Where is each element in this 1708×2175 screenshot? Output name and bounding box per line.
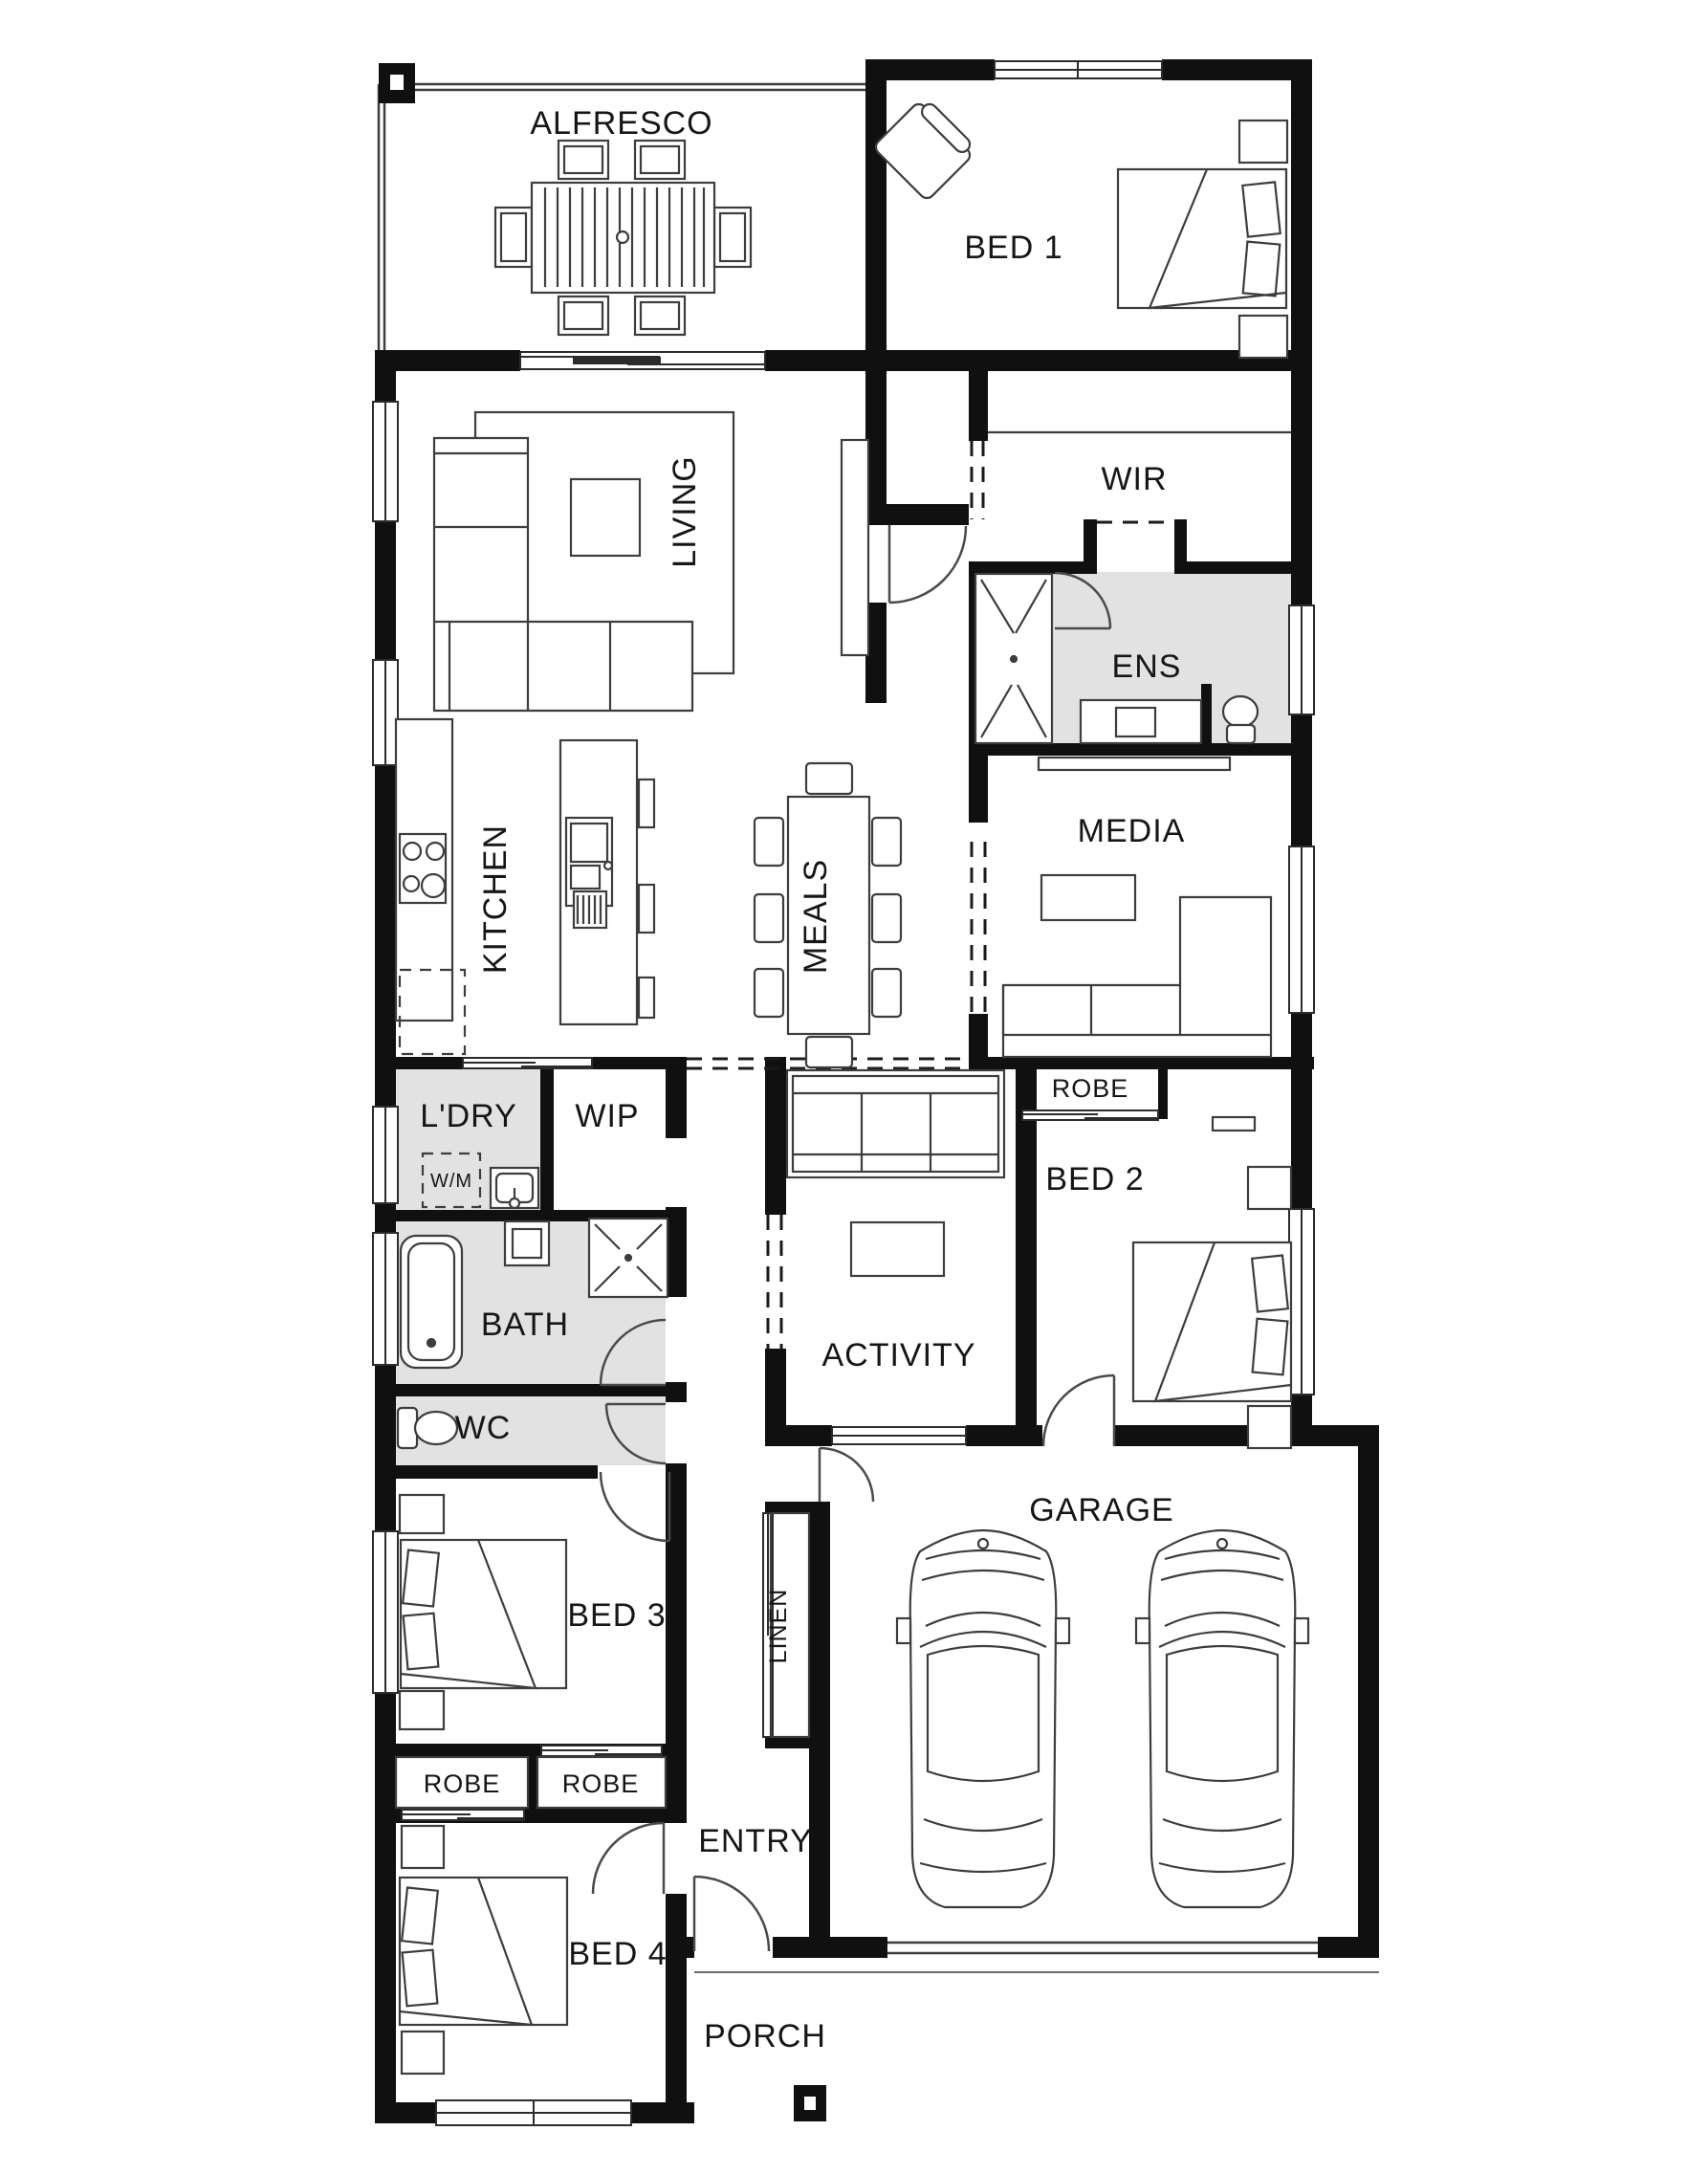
island-sink-icon <box>566 818 612 928</box>
cooktop-icon <box>400 834 446 903</box>
room-label-entry: ENTRY <box>698 1823 813 1859</box>
double-bed-icon <box>1118 121 1287 358</box>
room-label-kitchen: KITCHEN <box>477 824 514 974</box>
double-bed-icon <box>400 1826 567 2074</box>
room-label-linen: LINEN <box>765 1589 792 1664</box>
sliding-door-icon <box>402 1810 524 1820</box>
room-label-wip: WIP <box>575 1098 639 1134</box>
shower-icon <box>975 574 1052 743</box>
sliding-door-icon <box>541 1746 662 1756</box>
room-label-wc: WC <box>455 1410 512 1446</box>
double-bed-icon <box>400 1495 566 1729</box>
window-icon <box>436 2100 631 2125</box>
room-label-bed2: BED 2 <box>1045 1161 1144 1197</box>
armchair-icon <box>873 96 978 201</box>
window-icon <box>373 1233 398 1365</box>
room-label-ldry: L'DRY <box>420 1098 517 1134</box>
window-icon <box>373 660 398 765</box>
room-label-bed1: BED 1 <box>964 230 1062 266</box>
window-icon <box>1289 846 1314 1013</box>
window-icon <box>1289 1209 1314 1395</box>
toilet-icon <box>1223 696 1258 743</box>
room-label-activity: ACTIVITY <box>821 1337 975 1373</box>
outdoor-dining-table-icon <box>495 141 751 335</box>
door-swing-icon <box>601 1472 669 1541</box>
sliding-door-icon <box>520 352 765 369</box>
room-label-garage: GARAGE <box>1029 1492 1173 1528</box>
door-swing-icon <box>593 1823 664 1894</box>
window-icon <box>995 61 1162 78</box>
coffee-table-icon <box>1041 875 1135 920</box>
label-wm: W/M <box>430 1171 472 1192</box>
room-label-robe-bed2: ROBE <box>1052 1074 1129 1103</box>
tv-icon <box>1039 758 1230 770</box>
room-label-bath: BATH <box>481 1307 569 1343</box>
room-label-living: LIVING <box>667 455 703 567</box>
sliding-door-icon <box>463 1058 592 1068</box>
laundry-trough-icon <box>491 1168 538 1208</box>
door-swing-icon <box>889 525 966 603</box>
sofa-icon <box>787 1070 1004 1177</box>
room-label-bed4: BED 4 <box>568 1936 667 1972</box>
door-swing-icon <box>820 1448 873 1502</box>
column-core <box>804 2097 816 2110</box>
room-label-meals: MEALS <box>798 859 834 974</box>
floor-plan-drawing: ALFRESCO BED 1 LIVING WIR ENS KITCHEN ME… <box>0 0 1708 2175</box>
room-label-media: MEDIA <box>1078 813 1186 849</box>
corner-sofa-icon <box>434 438 692 711</box>
room-label-alfresco: ALFRESCO <box>530 105 712 142</box>
bathtub-icon <box>401 1236 462 1368</box>
shelf-icon <box>1213 1117 1255 1131</box>
floor-plan: ALFRESCO BED 1 LIVING WIR ENS KITCHEN ME… <box>0 0 1708 2175</box>
room-label-robe-bed3: ROBE <box>562 1769 640 1798</box>
island-bench <box>560 740 654 1024</box>
coffee-table-icon <box>851 1222 944 1276</box>
window-icon <box>373 1107 398 1203</box>
window-icon <box>832 1427 966 1444</box>
room-label-wir: WIR <box>1101 461 1167 497</box>
toilet-icon <box>398 1408 457 1448</box>
tv-unit-icon <box>842 440 868 655</box>
vanity-basin-icon <box>505 1221 549 1265</box>
vanity-basin-icon <box>1081 700 1201 743</box>
car-icon <box>1136 1530 1308 1907</box>
sliding-door-icon <box>1022 1110 1158 1120</box>
room-label-porch: PORCH <box>704 2018 826 2054</box>
garage-door-icon <box>887 1943 1318 1953</box>
room-label-bed3: BED 3 <box>567 1597 666 1634</box>
window-icon <box>373 1531 398 1693</box>
room-label-robe-bed4: ROBE <box>424 1769 501 1798</box>
window-icon <box>373 402 398 521</box>
window-icon <box>1289 605 1314 714</box>
double-bed-icon <box>1133 1167 1291 1448</box>
coffee-table-icon <box>571 479 640 556</box>
door-swing-icon <box>694 1877 769 1951</box>
car-icon <box>897 1530 1069 1907</box>
room-label-ens: ENS <box>1112 648 1182 685</box>
shower-icon <box>589 1219 668 1297</box>
column-core <box>390 75 404 90</box>
door-swing-icon <box>1043 1375 1114 1446</box>
kitchen-bench <box>396 719 465 1054</box>
